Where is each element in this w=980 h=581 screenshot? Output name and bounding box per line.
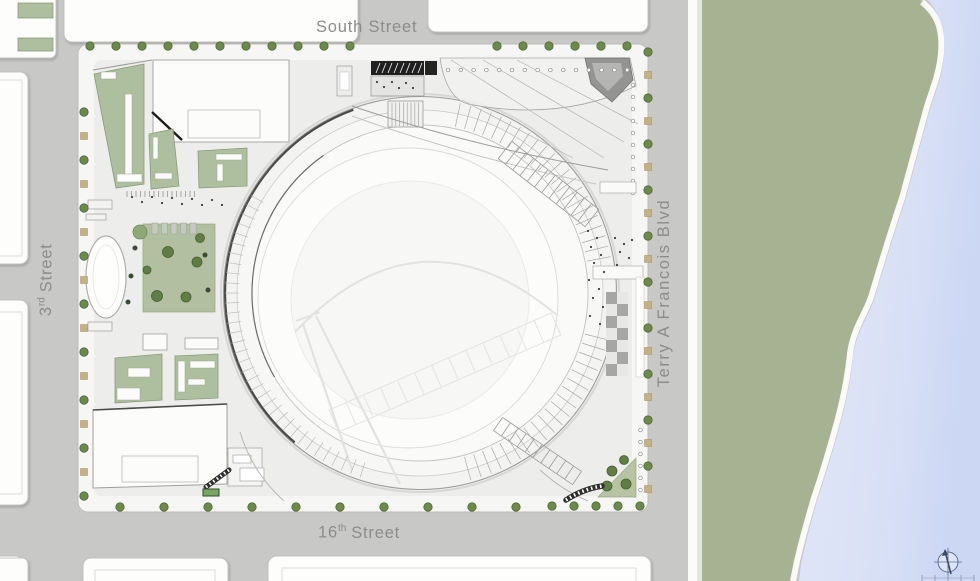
tree-icon bbox=[570, 502, 578, 510]
entry-sign bbox=[203, 489, 219, 496]
tree-icon bbox=[80, 300, 88, 308]
tree-icon bbox=[380, 503, 388, 511]
site-plan-map: South Street 3rdStreet 16thStreet Terry … bbox=[0, 0, 980, 581]
shrub-bed-icon bbox=[81, 133, 88, 140]
shrub-bed-icon bbox=[81, 181, 88, 188]
tree-icon bbox=[512, 503, 520, 511]
shrub-bed-icon bbox=[645, 394, 652, 401]
tree-icon bbox=[80, 156, 88, 164]
tree-icon bbox=[592, 502, 600, 510]
tree-icon bbox=[80, 108, 88, 116]
tree-icon bbox=[644, 278, 652, 286]
shrub-bed-icon bbox=[645, 348, 652, 355]
crosswalk-checker bbox=[606, 292, 628, 376]
shrub-bed-icon bbox=[81, 325, 88, 332]
tree-icon bbox=[242, 42, 250, 50]
tree-icon bbox=[292, 503, 300, 511]
tree-icon bbox=[80, 348, 88, 356]
tree-icon bbox=[644, 324, 652, 332]
tree-icon bbox=[138, 42, 146, 50]
south-street-label: South Street bbox=[316, 17, 417, 37]
tree-icon bbox=[80, 492, 88, 500]
shrub-bed-icon bbox=[645, 72, 652, 79]
tree-icon bbox=[493, 42, 501, 50]
tree-icon bbox=[80, 252, 88, 260]
tree-icon bbox=[336, 503, 344, 511]
sixteenth-street-label: 16thStreet bbox=[318, 519, 400, 543]
tree-icon bbox=[80, 204, 88, 212]
tree-icon bbox=[545, 42, 553, 50]
shrub-bed-icon bbox=[81, 421, 88, 428]
third-street-label: 3rdStreet bbox=[32, 224, 56, 336]
terry-a-francois-blvd-label: Terry A Francois Blvd bbox=[654, 183, 674, 403]
tree-icon bbox=[248, 503, 256, 511]
shrub-bed-icon bbox=[645, 256, 652, 263]
tree-icon bbox=[614, 502, 622, 510]
shrub-bed-icon bbox=[645, 302, 652, 309]
tree-icon bbox=[597, 42, 605, 50]
shrub-bed-icon bbox=[81, 373, 88, 380]
tree-icon bbox=[623, 42, 631, 50]
tree-icon bbox=[346, 42, 354, 50]
tree-icon bbox=[548, 502, 556, 510]
tree-icon bbox=[644, 232, 652, 240]
shrub-bed-icon bbox=[645, 440, 652, 447]
tree-icon bbox=[80, 396, 88, 404]
tree-icon bbox=[644, 94, 652, 102]
tree-icon bbox=[160, 503, 168, 511]
tree-icon bbox=[116, 503, 124, 511]
tree-icon bbox=[571, 42, 579, 50]
tree-icon bbox=[519, 42, 527, 50]
shrub-bed-icon bbox=[81, 229, 88, 236]
arena-building bbox=[221, 94, 619, 492]
tree-icon bbox=[644, 370, 652, 378]
tree-icon bbox=[164, 42, 172, 50]
shrub-bed-icon bbox=[81, 469, 88, 476]
tree-icon bbox=[636, 502, 644, 510]
tree-icon bbox=[86, 42, 94, 50]
tree-icon bbox=[294, 42, 302, 50]
tree-icon bbox=[644, 416, 652, 424]
bayfront bbox=[688, 0, 980, 581]
site-plan-canvas bbox=[0, 0, 980, 581]
tree-icon bbox=[320, 42, 328, 50]
tree-icon bbox=[644, 462, 652, 470]
tree-icon bbox=[268, 42, 276, 50]
tree-icon bbox=[112, 42, 120, 50]
shrub-bed-icon bbox=[645, 486, 652, 493]
tree-icon bbox=[190, 42, 198, 50]
tree-icon bbox=[468, 503, 476, 511]
tree-icon bbox=[80, 444, 88, 452]
tree-icon bbox=[204, 503, 212, 511]
shrub-bed-icon bbox=[645, 118, 652, 125]
tree-icon bbox=[644, 186, 652, 194]
tree-icon bbox=[216, 42, 224, 50]
tree-icon bbox=[644, 48, 652, 56]
shrub-bed-icon bbox=[645, 164, 652, 171]
shrub-bed-icon bbox=[645, 210, 652, 217]
oval-plaza bbox=[86, 236, 126, 318]
shrub-bed-icon bbox=[81, 277, 88, 284]
tree-icon bbox=[644, 140, 652, 148]
tree-icon bbox=[424, 503, 432, 511]
